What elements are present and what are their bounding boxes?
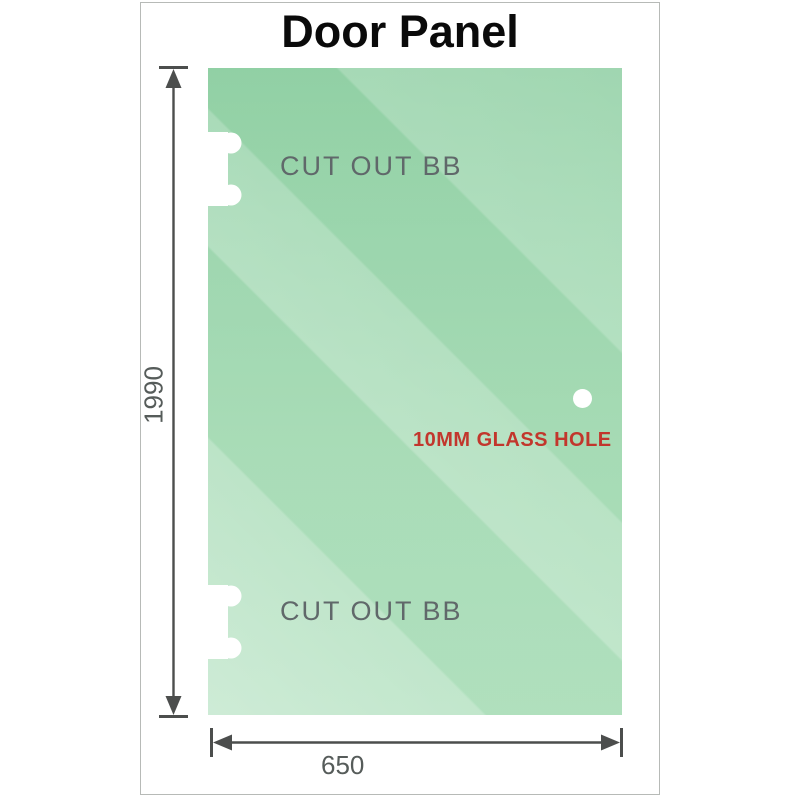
diagram-title: Door Panel xyxy=(140,6,660,58)
glass-hole xyxy=(573,389,592,408)
cutout-top-label: CUT OUT BB xyxy=(280,151,463,182)
cutout-bottom-label: CUT OUT BB xyxy=(280,596,463,627)
glass-hole-label: 10MM GLASS HOLE xyxy=(413,429,612,452)
hinge-cutout-bottom-shape xyxy=(207,585,245,659)
height-dimension-label: 1990 xyxy=(139,366,170,424)
hinge-cutout-top-shape xyxy=(207,132,245,206)
width-dimension-label: 650 xyxy=(321,750,364,781)
